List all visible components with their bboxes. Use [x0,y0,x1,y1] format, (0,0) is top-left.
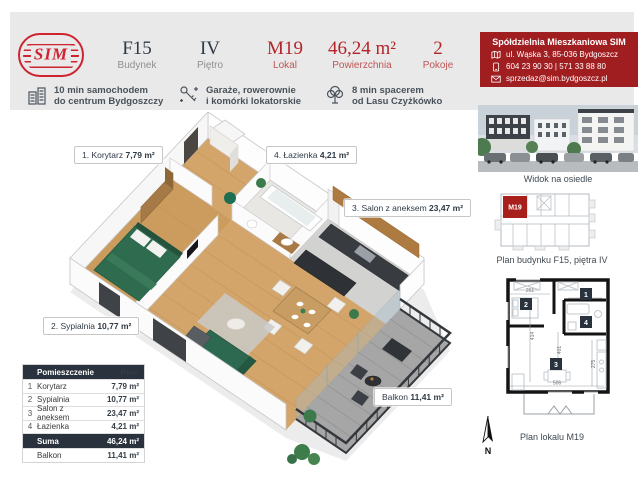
map-icon [491,50,501,60]
contact-phones-row: 604 23 90 30 | 571 33 88 80 [491,62,638,72]
svg-text:1: 1 [584,292,588,299]
label-korytarz: 1. Korytarz 7,79 m² [74,146,163,164]
svg-text:261: 261 [526,288,535,294]
contact-email: sprzedaz@sim.bydgoszcz.pl [506,74,608,84]
rooms-table: Pomieszczenie Pow. 1Korytarz7,79 m² 2Syp… [22,364,145,463]
table-balkon-row: Balkon11,41 m² [23,448,144,462]
sim-logo: SIM [18,33,84,77]
feature-text: 10 min samochodemdo centrum Bydgoszczy [54,84,163,107]
contact-email-row: sprzedaz@sim.bydgoszcz.pl [491,74,638,84]
contact-box: Spółdzielnia Mieszkaniowa SIM ul. Wąska … [480,32,638,87]
contact-title: Spółdzielnia Mieszkaniowa SIM [484,37,634,47]
svg-text:3: 3 [554,362,558,369]
svg-text:275: 275 [591,360,597,369]
stat-value: 2 [393,39,483,59]
logo-text: SIM [31,45,71,63]
table-row: 3Salon z aneksem23,47 m² [23,406,144,420]
building-plan-caption: Plan budynku F15, piętra IV [464,255,640,265]
building-plan-unit-label: M19 [508,205,522,212]
compass-north-icon: N [476,414,500,458]
table-row: 4Łazienka4,21 m² [23,420,144,434]
feature-forest: 8 min spaceremod Lasu Czyżkówko [324,84,442,107]
svg-text:4: 4 [584,320,588,327]
envelope-icon [491,74,501,84]
unit-plan: 261 414 178 275 506 401 1 2 3 4 [496,274,626,430]
label-lazienka: 4. Łazienka 4,21 m² [266,146,357,164]
estate-photo [478,105,638,172]
table-row: 1Korytarz7,79 m² [23,379,144,393]
svg-text:506: 506 [553,381,562,387]
key-icon [178,84,200,106]
building-icon [26,84,48,106]
contact-address-row: ul. Wąska 3, 85-036 Bydgoszcz [491,50,638,60]
feature-car-distance: 10 min samochodemdo centrum Bydgoszczy [26,84,163,107]
contact-phones: 604 23 90 30 | 571 33 88 80 [506,62,606,72]
label-balkon: Balkon 11,41 m² [374,388,452,406]
feature-garages: Garaże, rowerowniei komórki lokatorskie [178,84,301,107]
label-salon: 3. Salon z aneksem 23,47 m² [344,199,471,217]
svg-text:2: 2 [524,302,528,309]
feature-text: 8 min spaceremod Lasu Czyżkówko [352,84,442,107]
flyer-page: { "header": { "logo": "SIM", "stats": [ … [0,0,640,480]
label-sypialnia: 2. Sypialnia 10,77 m² [43,317,139,335]
stat-pokoje: 2 Pokoje [393,39,483,71]
table-header: Pomieszczenie Pow. [23,365,144,379]
feature-text: Garaże, rowerowniei komórki lokatorskie [206,84,301,107]
contact-address: ul. Wąska 3, 85-036 Bydgoszcz [506,50,618,60]
tree-icon [324,84,346,106]
stat-label: Pokoje [393,60,483,71]
phone-icon [491,62,501,72]
photo-caption: Widok na osiedle [478,174,638,184]
building-plan: M19 [493,190,608,254]
compass-label: N [485,446,492,456]
svg-text:414: 414 [530,332,536,341]
svg-text:401: 401 [557,346,563,355]
table-total-row: Suma46,24 m² [23,433,144,448]
